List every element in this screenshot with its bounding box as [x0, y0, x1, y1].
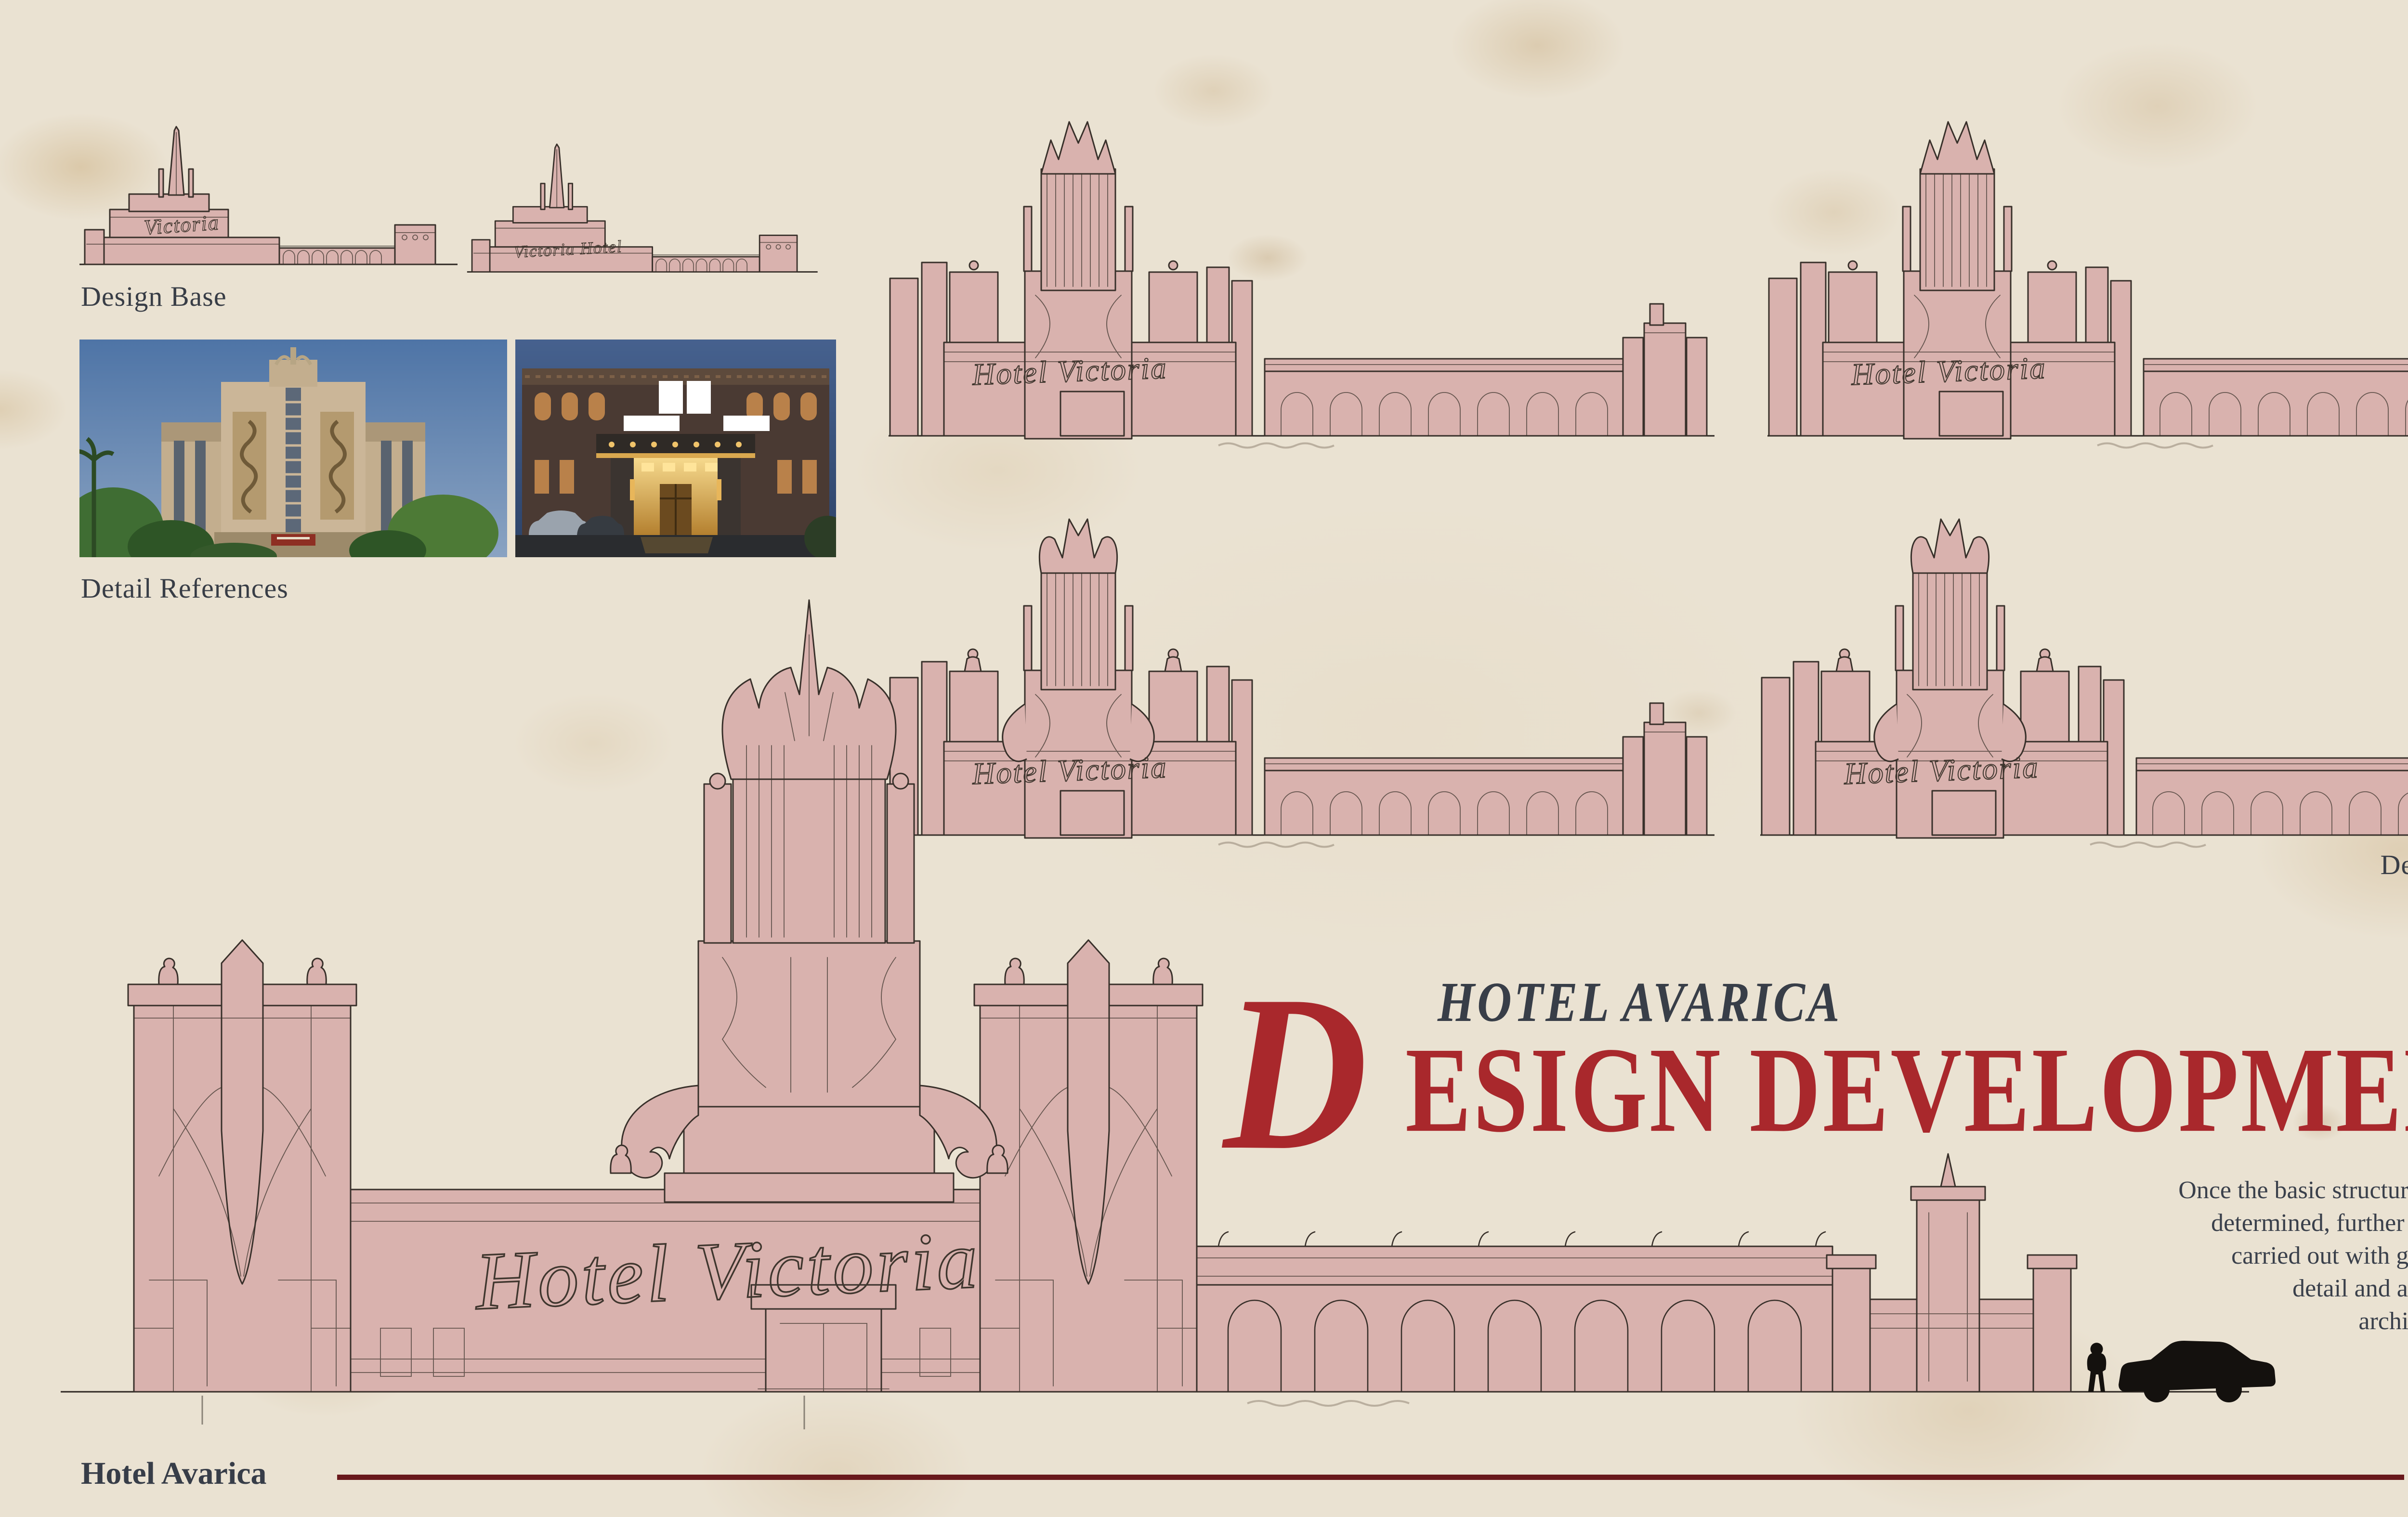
hotel-sign-script: Hotel Victoria [971, 351, 1168, 392]
scale-figures [2087, 1341, 2276, 1402]
footer-divider-rule [337, 1475, 2404, 1480]
presentation-board: Victoria Victoria Hotel Design Base [0, 0, 2408, 1517]
footer-author-name: Daeun Min [2379, 1455, 2408, 1492]
title-main: ESIGN DEVELOPMENT [1405, 1029, 2408, 1151]
detail-variation-sketch-1: Hotel Victoria [881, 112, 1739, 449]
left-pylon-tower [128, 940, 356, 1392]
central-tower [611, 600, 1008, 1202]
end-pavilion [1827, 1154, 2077, 1392]
description-line: determined, further development was [2042, 1207, 2408, 1240]
description-line: carried out with greater attention to [2042, 1240, 2408, 1272]
reference-photo-hotel-entrance-night [515, 340, 836, 557]
car-silhouette [2119, 1341, 2276, 1392]
footer-project-name: Hotel Avarica [81, 1455, 267, 1492]
title-initial: D [1223, 961, 1368, 1184]
design-base-sketch-1: Victoria [72, 123, 482, 282]
main-elevation-sketch: Hotel Victoria [14, 577, 2278, 1400]
detail-variation-sketch-2: Hotel Victoria [1760, 112, 2408, 449]
description-paragraph: Once the basic structure of the hotel wa… [2042, 1174, 2408, 1338]
right-pylon-tower [974, 940, 1203, 1392]
description-line: detail and a focus on realistic [2042, 1272, 2408, 1305]
design-base-sketch-2: Victoria Hotel [460, 141, 840, 288]
reference-photo-daytime-artdeco [79, 340, 507, 557]
arcade-wing [1197, 1232, 1832, 1406]
person-silhouette [2087, 1343, 2107, 1392]
description-line: architectural elements. [2042, 1305, 2408, 1338]
design-base-label: Design Base [81, 280, 227, 313]
porte-cochere [596, 434, 755, 535]
description-line: Once the basic structure of the hotel wa… [2042, 1174, 2408, 1207]
hotel-sign-script: Hotel Victoria [1850, 351, 2047, 392]
detail-variations-label: Detail Variations [2288, 849, 2408, 881]
